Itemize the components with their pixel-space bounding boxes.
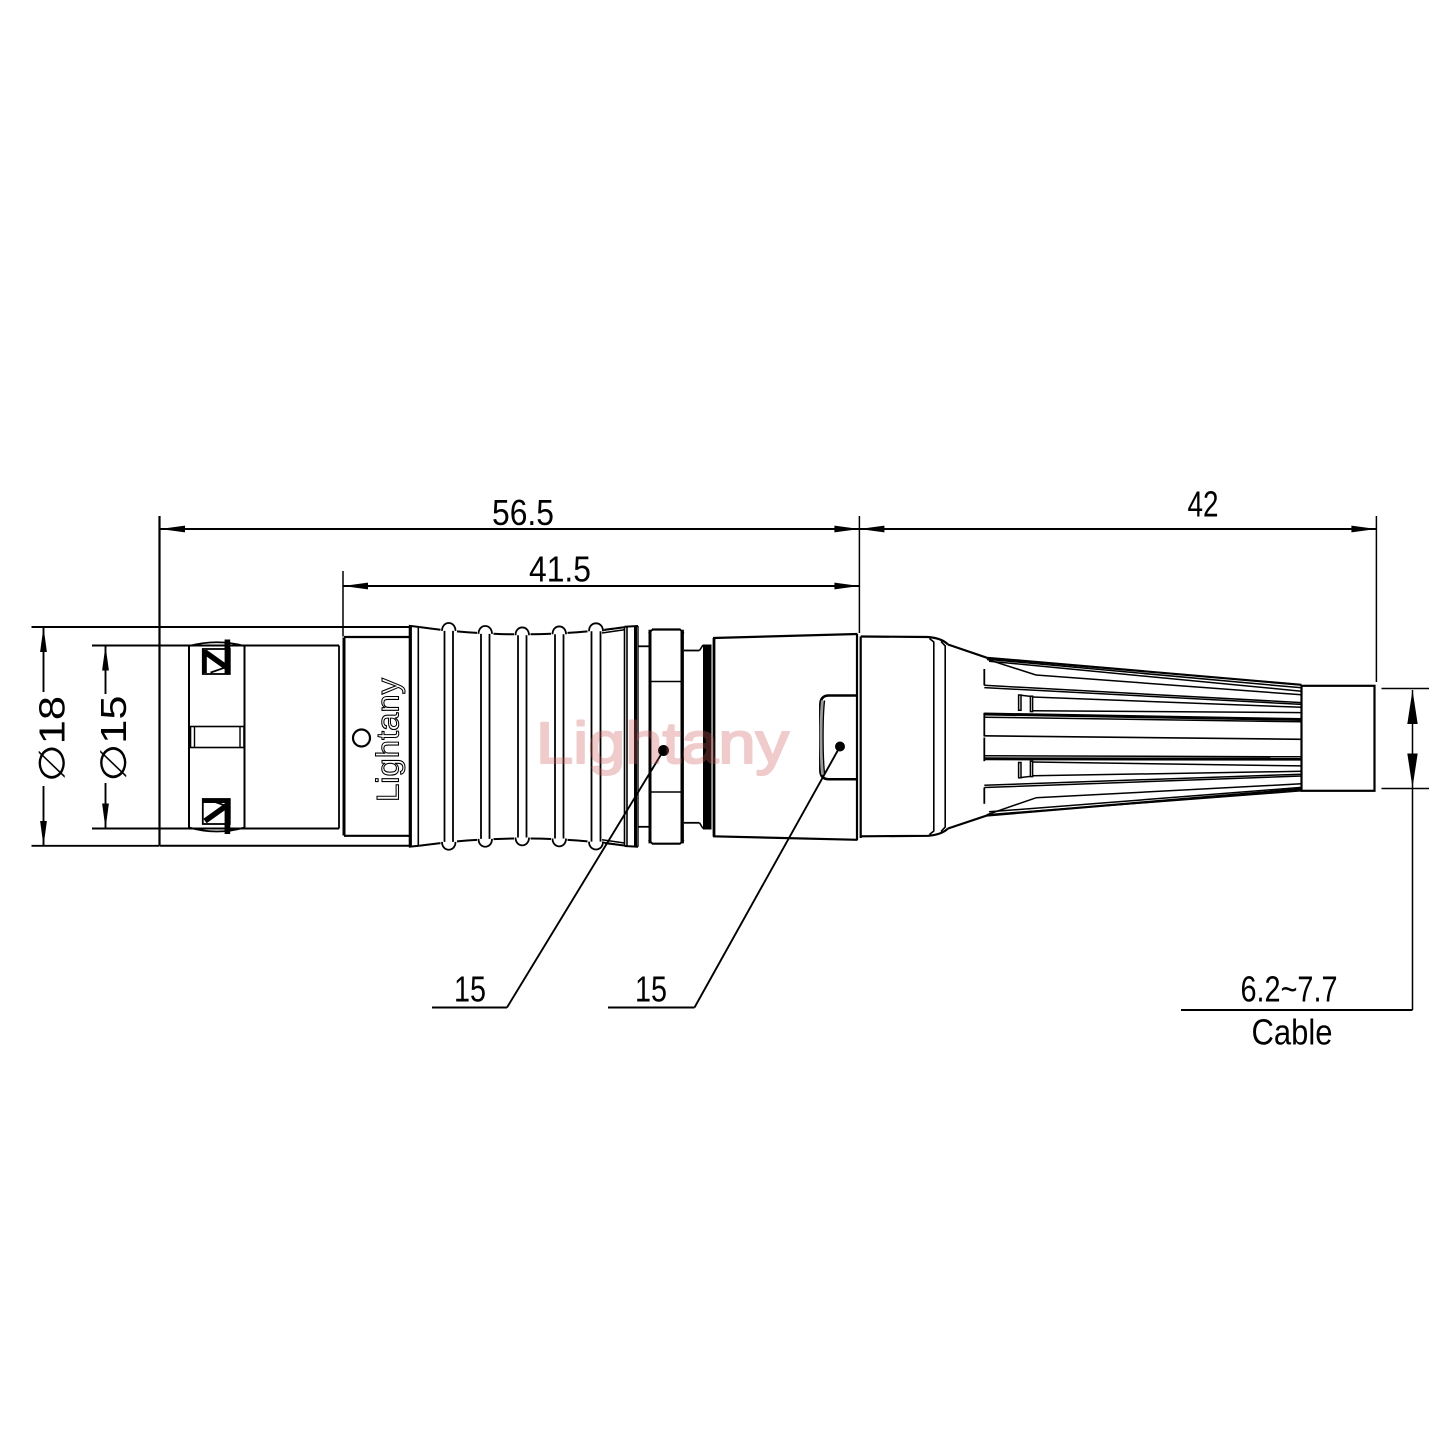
svg-text:Lightany: Lightany [536,711,789,776]
svg-text:15: 15 [454,969,486,1010]
svg-text:56.5: 56.5 [492,492,554,533]
svg-text:Lightany: Lightany [369,678,405,802]
svg-text:15: 15 [635,969,667,1010]
svg-text:∅15: ∅15 [93,696,134,782]
svg-text:41.5: 41.5 [529,549,591,590]
svg-text:42: 42 [1188,484,1219,525]
svg-text:Cable: Cable [1252,1012,1333,1053]
svg-text:6.2~7.7: 6.2~7.7 [1241,969,1338,1010]
svg-text:∅18: ∅18 [32,696,73,782]
